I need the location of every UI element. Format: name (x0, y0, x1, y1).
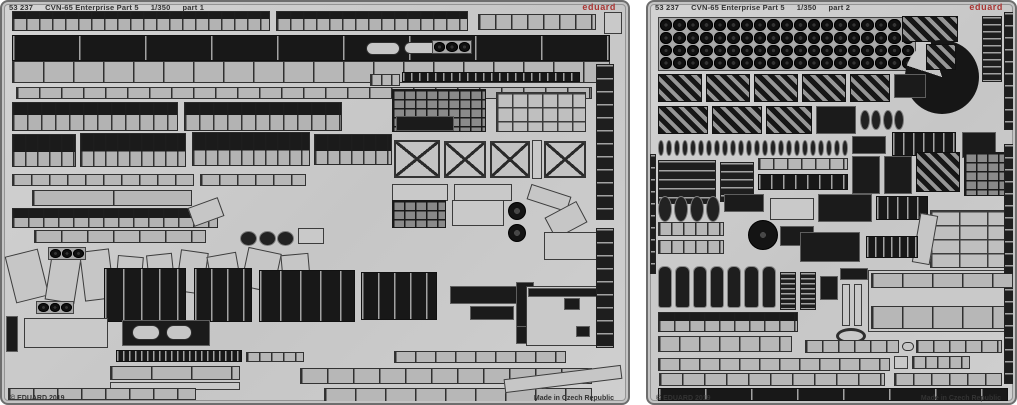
made-in-text: Made in Czech Republic (921, 395, 1001, 402)
pe-part-darkseg (12, 35, 610, 61)
pe-part-hatch (916, 152, 960, 192)
copyright-text: © EDUARD 2019 (10, 395, 65, 402)
pe-part-circles (658, 17, 916, 71)
pe-part-dark (6, 316, 18, 352)
pe-part-dark (450, 286, 522, 304)
pe-part-hatch (754, 74, 798, 102)
pe-part-darkseg (194, 268, 252, 322)
pe-part-light (392, 184, 448, 201)
pe-part-dark (564, 298, 580, 310)
pe-sheet-part2: 53 237 CVN-65 Enterprise Part 5 1/350 pa… (646, 0, 1017, 405)
pe-part-darkseg (866, 236, 918, 258)
sheet-title: CVN-65 Enterprise Part 5 (691, 3, 785, 12)
made-in-text: Made in Czech Republic (534, 395, 614, 402)
pe-part-vseg (982, 16, 1002, 82)
pe-part-diag (45, 254, 82, 304)
pe-part-light (842, 284, 850, 326)
pe-part-hatch (706, 74, 750, 102)
pe-part-light (544, 232, 602, 260)
pe-part-vseg (1004, 144, 1013, 274)
pe-part-vseg (1004, 12, 1013, 130)
pe-part-seg (871, 273, 1013, 288)
pe-part-grid (964, 152, 1008, 196)
pe-part-seg (110, 366, 240, 380)
pe-part-hatch (712, 106, 762, 134)
pe-part-dark (800, 232, 860, 262)
pe-part-rail (314, 134, 392, 165)
pe-part-seg (658, 222, 724, 236)
pe-part-seg (246, 352, 304, 362)
pe-part-dark (724, 194, 764, 212)
pe-part-hatch (926, 44, 956, 70)
pe-part-circles (432, 40, 472, 54)
catalog-number: 53 237 (655, 3, 679, 12)
pe-part-seg (871, 306, 1013, 329)
pe-part-seg (758, 158, 848, 170)
pe-part-gridlight (496, 92, 586, 132)
pe-part-disc (508, 224, 526, 242)
pe-part-dark (528, 288, 604, 297)
pe-part-dark (470, 306, 514, 320)
pe-part-dark (576, 326, 590, 337)
pe-part-seg (912, 356, 970, 369)
pe-part-pill (902, 342, 914, 351)
pe-part-seg (200, 174, 306, 186)
sheet-scale: 1/350 (151, 3, 171, 12)
pe-part-seg (805, 340, 899, 353)
pe-part-light (854, 284, 862, 326)
pe-part-darkseg (104, 268, 186, 322)
pe-part-light (24, 318, 108, 348)
pe-part-seg (894, 373, 1002, 386)
photo-canvas: 53 237 CVN-65 Enterprise Part 5 1/350 pa… (0, 0, 1017, 405)
pe-part-hatch (850, 74, 890, 102)
pe-part-rail (658, 312, 798, 332)
pe-part-rail (184, 102, 342, 131)
pe-part-darkseg (116, 350, 242, 362)
sheet-header: 53 237 CVN-65 Enterprise Part 5 1/350 pa… (655, 3, 850, 12)
pe-part-light (298, 228, 324, 244)
pe-part-hatch (766, 106, 812, 134)
pe-part-diag (188, 197, 225, 227)
pe-part-light (894, 356, 908, 369)
pe-part-seg (659, 373, 885, 386)
pe-part-dark (852, 156, 880, 194)
pe-part-hatch (658, 74, 702, 102)
eduard-logo: eduard (969, 2, 1003, 12)
pe-part-pill (366, 42, 400, 55)
pe-part-darkseg (361, 272, 437, 320)
pe-part-seg (916, 340, 1002, 353)
catalog-number: 53 237 (9, 3, 33, 12)
pe-part-seg (658, 240, 724, 254)
pe-part-dark (820, 276, 838, 300)
pe-part-seg (34, 230, 206, 243)
pe-part-dark (840, 268, 868, 280)
pe-part-rail (12, 102, 178, 131)
sheet-header: 53 237 CVN-65 Enterprise Part 5 1/350 pa… (9, 3, 204, 12)
pe-part-dark (894, 74, 926, 98)
pe-parts-layer (650, 4, 1013, 401)
pe-part-x (544, 141, 586, 178)
pe-part-ovals (860, 110, 904, 130)
pe-part-rail (12, 208, 218, 228)
pe-part-dark (396, 116, 454, 131)
pe-part-rail (12, 11, 270, 31)
pe-part-rail (192, 132, 310, 166)
pe-part-vseg (596, 228, 614, 348)
pe-part-seg (658, 358, 890, 371)
pe-part-darkseg (259, 270, 355, 322)
pe-part-vseg (1004, 288, 1013, 384)
sheet-title: CVN-65 Enterprise Part 5 (45, 3, 139, 12)
pe-part-dark (852, 136, 886, 154)
pe-part-light (604, 12, 622, 34)
pe-part-seg (658, 336, 792, 352)
pe-part-darkseg (758, 174, 848, 190)
pe-part-seg (394, 351, 566, 363)
copyright-text: © EDUARD 2019 (656, 395, 711, 402)
pe-part-ovals (658, 196, 720, 222)
pe-part-vseg (596, 64, 614, 220)
pe-part-rail (12, 134, 76, 167)
pe-part-ovals (658, 140, 848, 156)
pe-part-hatch (658, 106, 708, 134)
pe-part-gridlight (930, 210, 1013, 268)
pe-part-x (394, 140, 440, 178)
pe-part-dark (818, 194, 872, 222)
pe-part-vseg (650, 154, 656, 274)
sheet-scale: 1/350 (797, 3, 817, 12)
pe-part-seg (370, 74, 400, 86)
pe-part-diag (5, 249, 50, 304)
pe-part-seg (12, 174, 194, 186)
pe-part-circles (36, 301, 74, 314)
pe-part-vseg (800, 272, 816, 310)
pe-part-ovals (240, 231, 294, 246)
pe-part-circles (48, 247, 86, 260)
pe-part-vseg (780, 272, 796, 310)
pe-part-grid (392, 200, 446, 228)
sheet-part-number: part 1 (183, 3, 205, 12)
pe-part-rail (276, 11, 468, 31)
sheet-part-number: part 2 (829, 3, 851, 12)
pe-part-light (454, 184, 512, 201)
pe-sheet-part1: 53 237 CVN-65 Enterprise Part 5 1/350 pa… (0, 0, 630, 405)
pe-part-light (452, 200, 504, 226)
pe-part-pill (132, 325, 160, 340)
pe-parts-layer (4, 4, 626, 401)
pe-part-x (444, 141, 486, 178)
pe-part-hatch (802, 74, 846, 102)
pe-part-pill (166, 325, 192, 340)
pe-part-light (532, 140, 542, 179)
pe-part-darkseg (402, 72, 580, 82)
pe-part-disc (748, 220, 778, 250)
pe-part-dark (884, 156, 912, 194)
eduard-logo: eduard (582, 2, 616, 12)
pe-part-seg (32, 190, 192, 206)
pe-part-dark (816, 106, 856, 134)
pe-part-disc (508, 202, 526, 220)
pe-part-light (770, 198, 814, 220)
pe-part-rail (80, 133, 186, 167)
pe-part-x (490, 141, 530, 178)
pe-part-hatch (902, 16, 958, 42)
pe-part-bottles (658, 266, 776, 308)
pe-part-seg (478, 14, 596, 30)
